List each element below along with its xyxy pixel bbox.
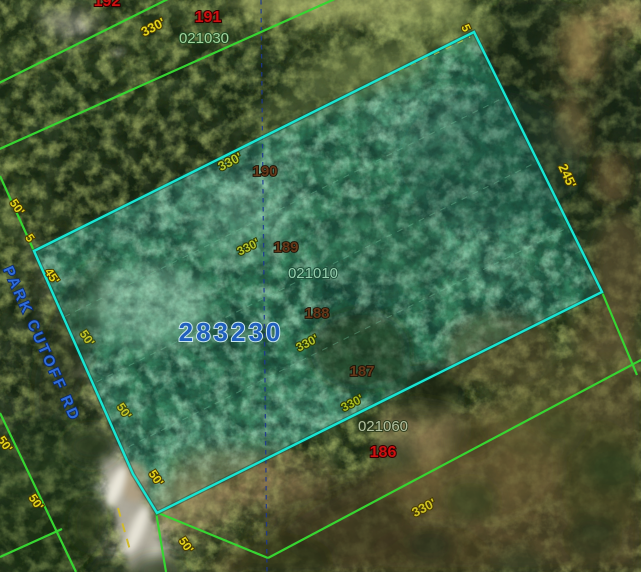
svg-text:189: 189	[273, 239, 298, 256]
svg-text:021010: 021010	[288, 265, 338, 282]
svg-text:192: 192	[94, 0, 121, 10]
svg-text:191: 191	[195, 9, 222, 26]
svg-text:283230: 283230	[179, 317, 284, 347]
svg-text:021060: 021060	[358, 418, 408, 435]
svg-text:190: 190	[252, 163, 277, 180]
svg-text:021030: 021030	[179, 30, 229, 47]
svg-text:187: 187	[349, 363, 374, 380]
svg-text:188: 188	[304, 305, 329, 322]
svg-text:186: 186	[370, 444, 397, 461]
